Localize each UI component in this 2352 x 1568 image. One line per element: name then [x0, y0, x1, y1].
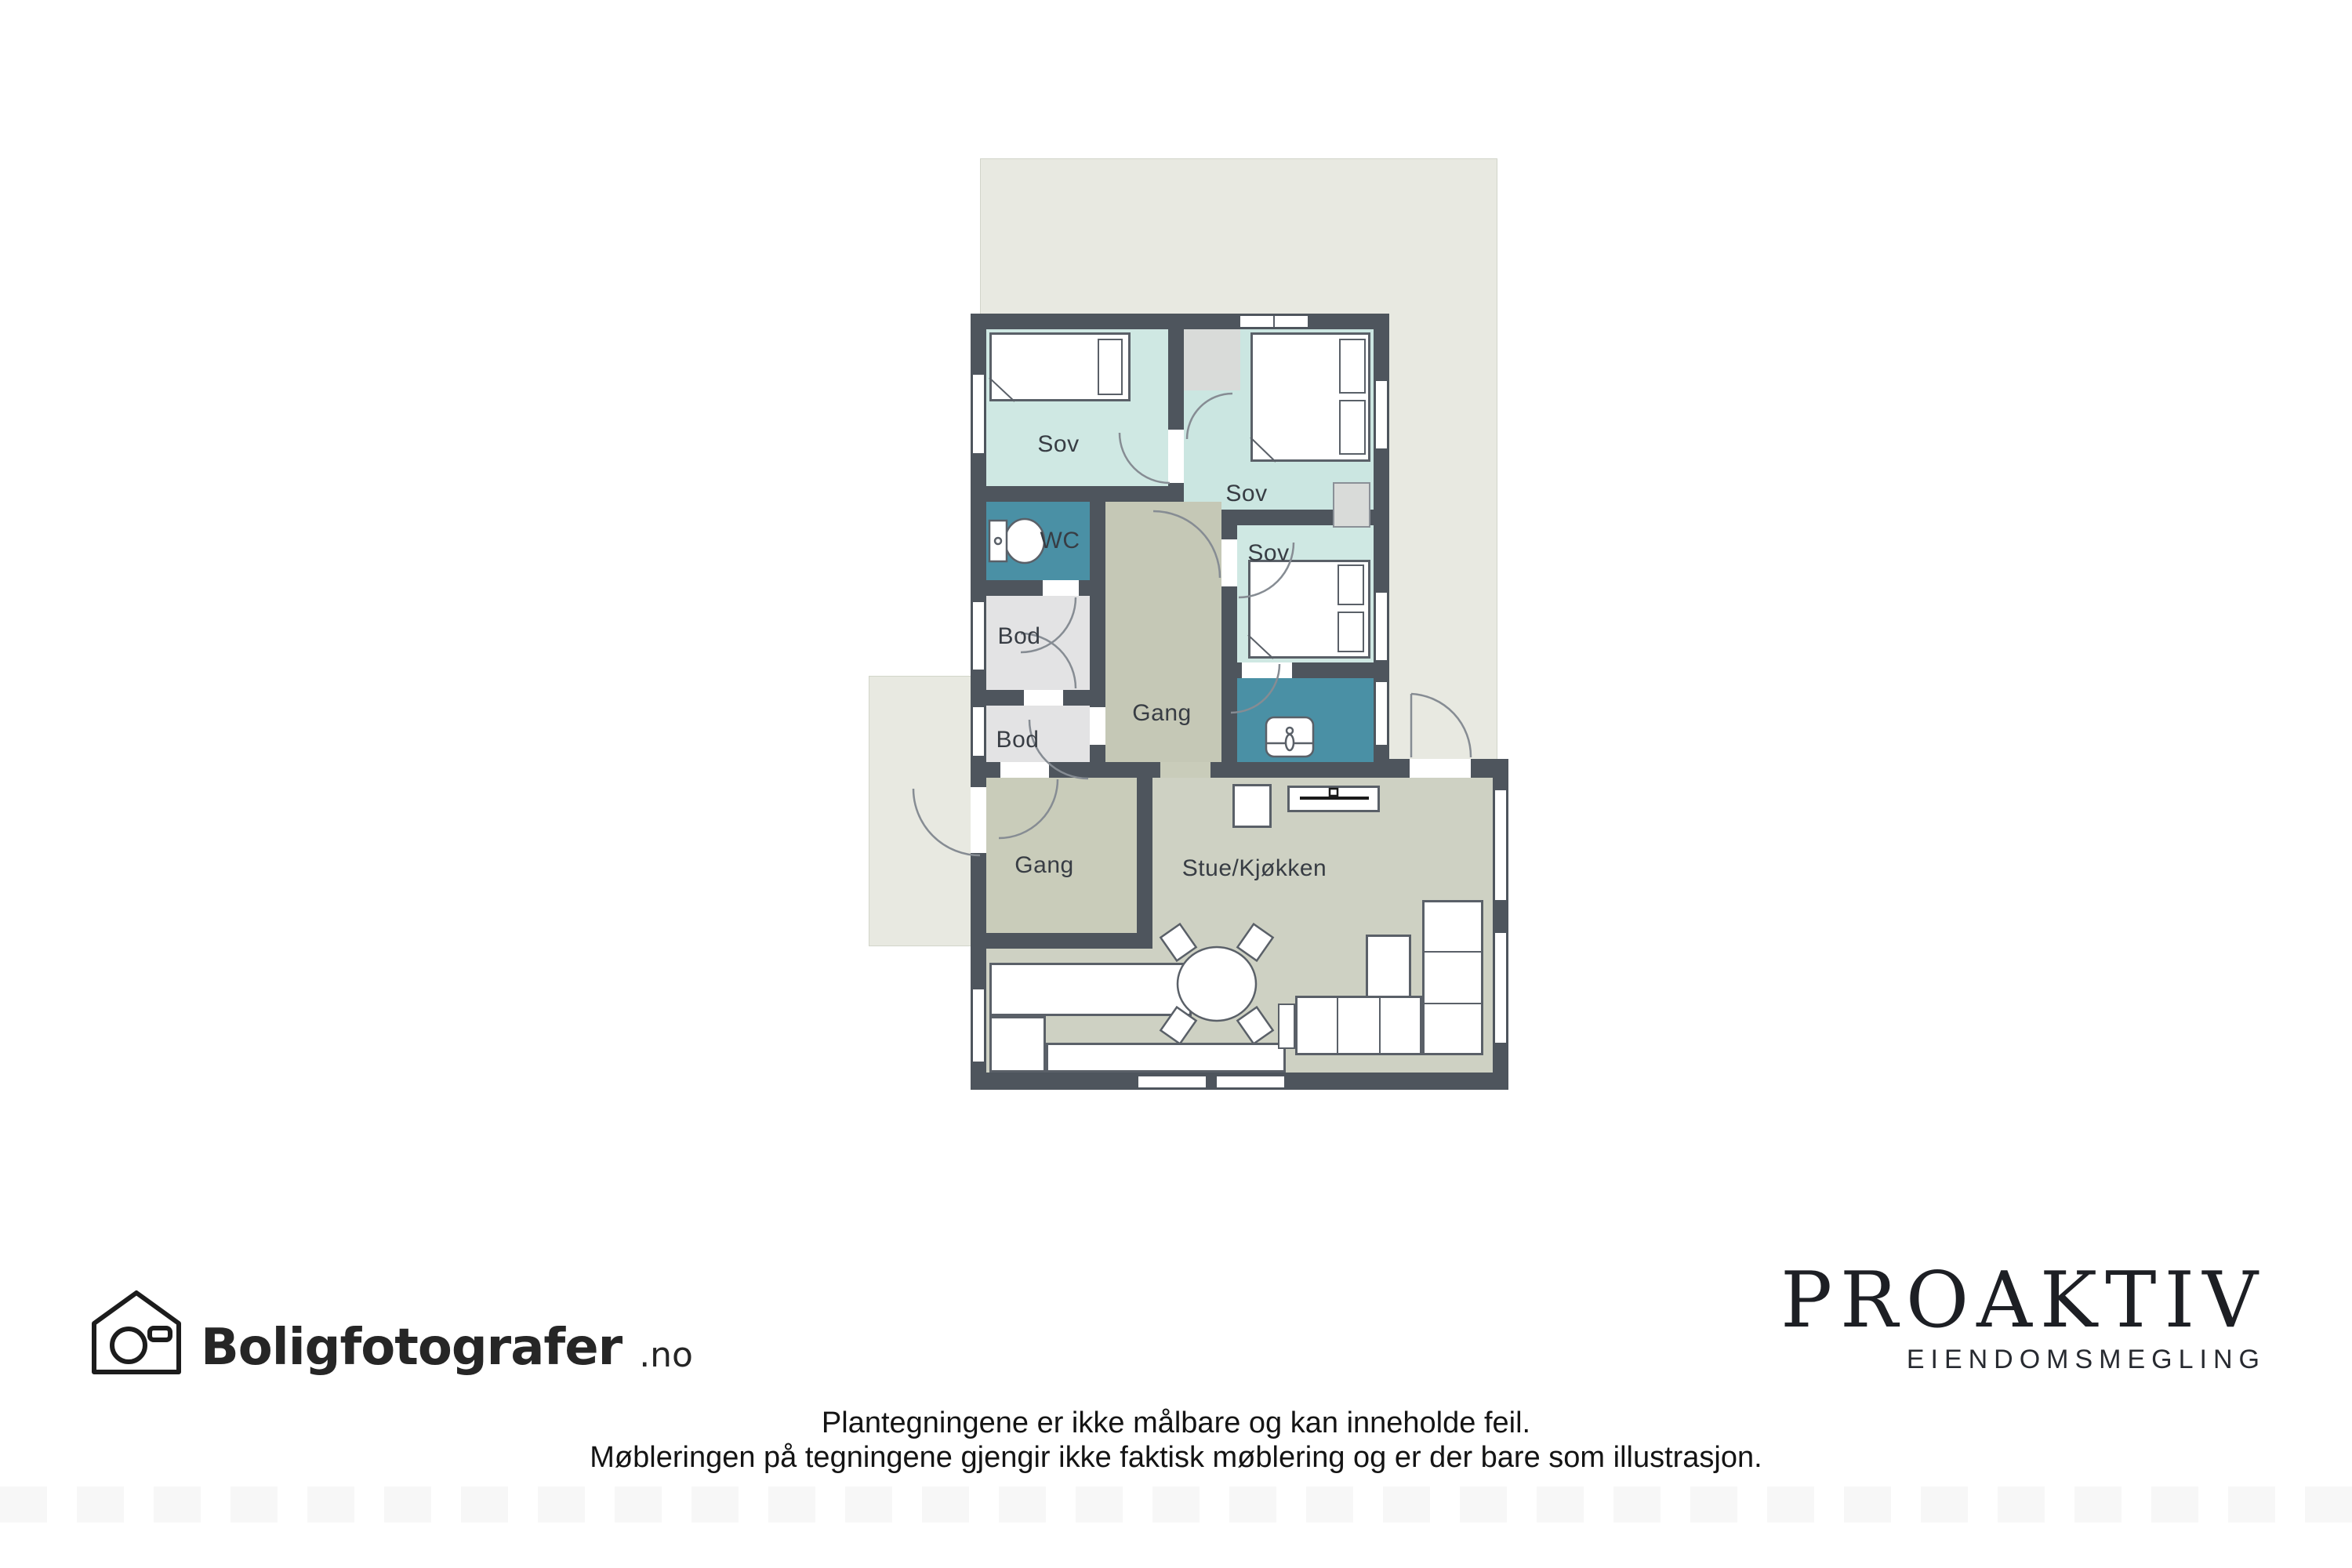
photographer-logo: Boligfotografer .no [88, 1287, 693, 1381]
door-arc-neck [1187, 394, 1232, 439]
toilet-bowl [1005, 519, 1044, 563]
bed-fold-sov2 [1250, 437, 1276, 462]
room-label-bod-1: Bod [998, 623, 1041, 650]
door-arc-main-entrance [1411, 694, 1471, 757]
door-arc-bath [1231, 664, 1279, 713]
floorplan-page: Sov Sov Sov WC Bod Bod Gang Gang Stue/Kj… [0, 0, 2352, 1568]
house-camera-icon [88, 1287, 185, 1381]
room-label-sov-2: Sov [1225, 481, 1267, 507]
room-label-bod-2: Bod [996, 727, 1040, 753]
room-label-sov-3: Sov [1247, 540, 1289, 567]
door-arc-sov1 [1120, 433, 1170, 483]
agency-logo: PROAKTIV EIENDOMSMEGLING [1780, 1261, 2266, 1375]
toilet-button [995, 538, 1001, 544]
photographer-logo-name: Boligfotografer [201, 1323, 622, 1381]
room-label-gang-entry: Gang [1014, 852, 1073, 879]
vanity-faucet [1287, 728, 1293, 734]
room-label-wc: WC [1040, 528, 1080, 554]
room-label-gang-center: Gang [1132, 700, 1191, 727]
room-label-sov-1: Sov [1037, 431, 1079, 458]
agency-logo-subtitle: EIENDOMSMEGLING [1780, 1345, 2266, 1375]
thumbnail-strip [0, 1486, 2352, 1523]
bed-fold-sov1 [989, 378, 1014, 401]
door-arc-gang-sov2 [1153, 511, 1220, 578]
disclaimer-line-1: Plantegningene er ikke målbare og kan in… [0, 1406, 2352, 1440]
disclaimer-line-2: Møbleringen på tegningene gjengir ikke f… [0, 1441, 2352, 1475]
door-arc-gang-entry [999, 779, 1058, 838]
vanity-basin [1286, 735, 1294, 750]
door-arc-terrace [913, 789, 980, 855]
dining-table [1178, 947, 1256, 1021]
tv-nub [1330, 789, 1338, 796]
photographer-logo-tld: .no [639, 1338, 693, 1381]
bed-fold-sov3 [1248, 635, 1273, 659]
room-label-stue-kjokken: Stue/Kjøkken [1182, 855, 1327, 882]
agency-logo-name: PROAKTIV [1780, 1261, 2266, 1341]
